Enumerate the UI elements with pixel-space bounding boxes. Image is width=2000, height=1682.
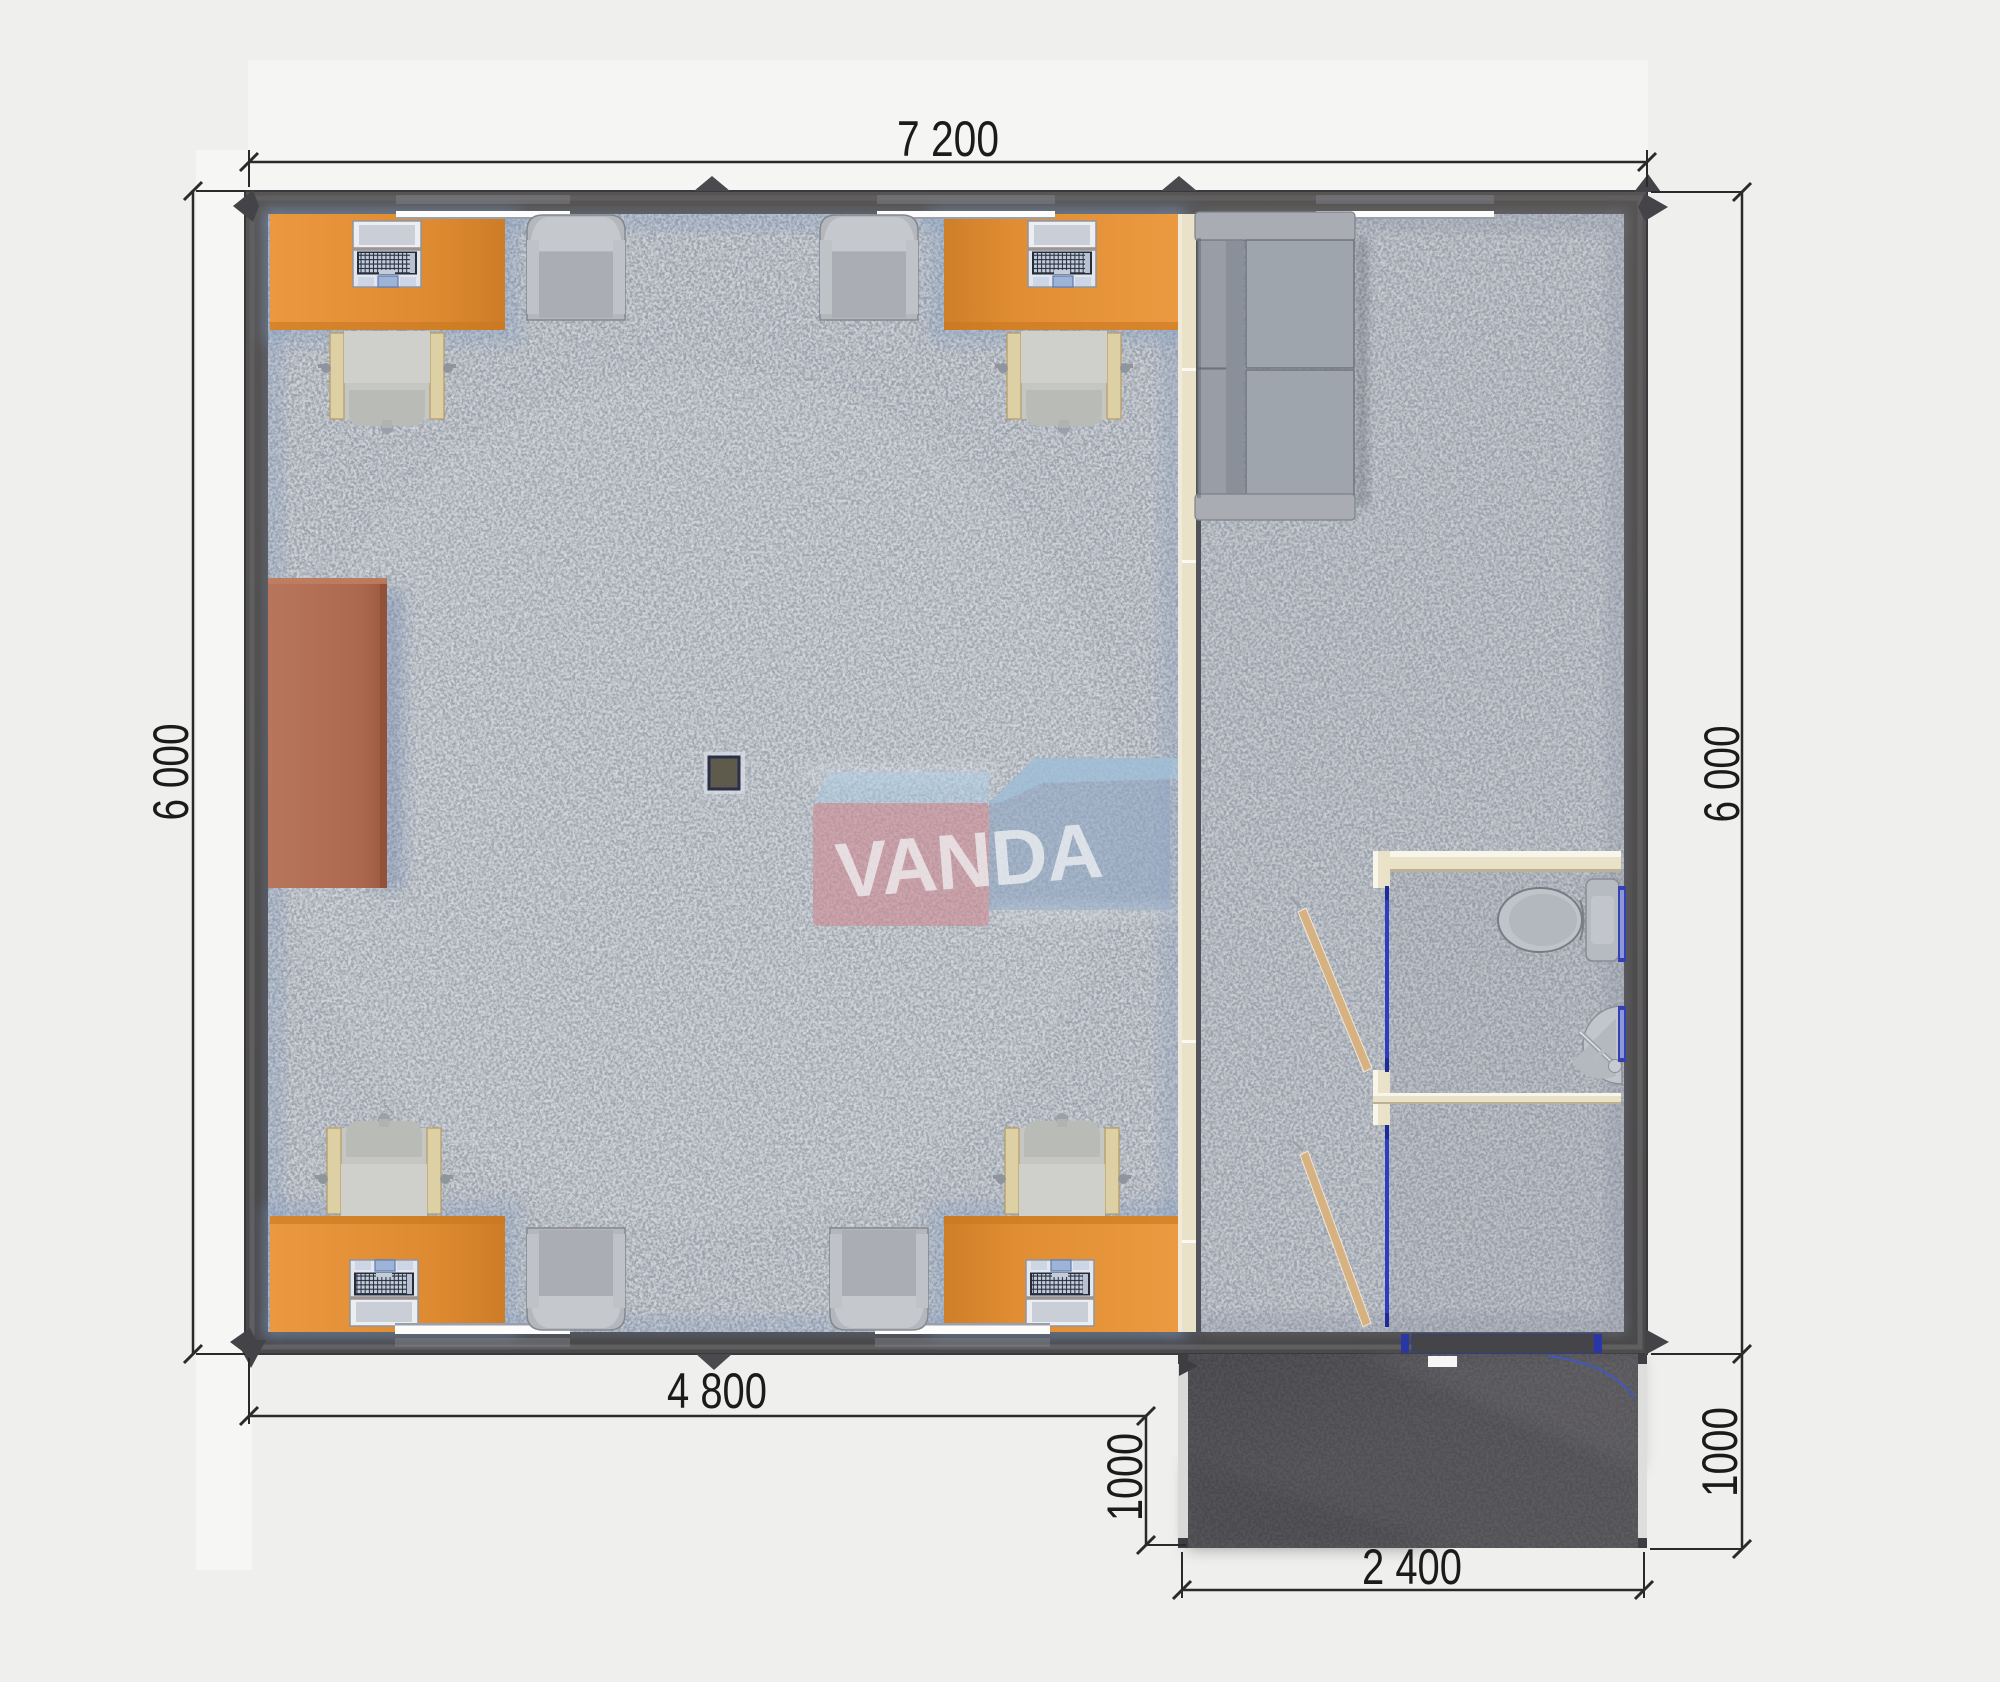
svg-text:2 400: 2 400 xyxy=(1362,1539,1462,1595)
svg-text:4 800: 4 800 xyxy=(667,1363,767,1419)
svg-text:1000: 1000 xyxy=(1692,1407,1748,1497)
svg-text:6 000: 6 000 xyxy=(143,724,199,821)
svg-text:6 000: 6 000 xyxy=(1694,726,1750,823)
svg-text:7 200: 7 200 xyxy=(897,111,999,167)
svg-text:1000: 1000 xyxy=(1097,1433,1153,1521)
